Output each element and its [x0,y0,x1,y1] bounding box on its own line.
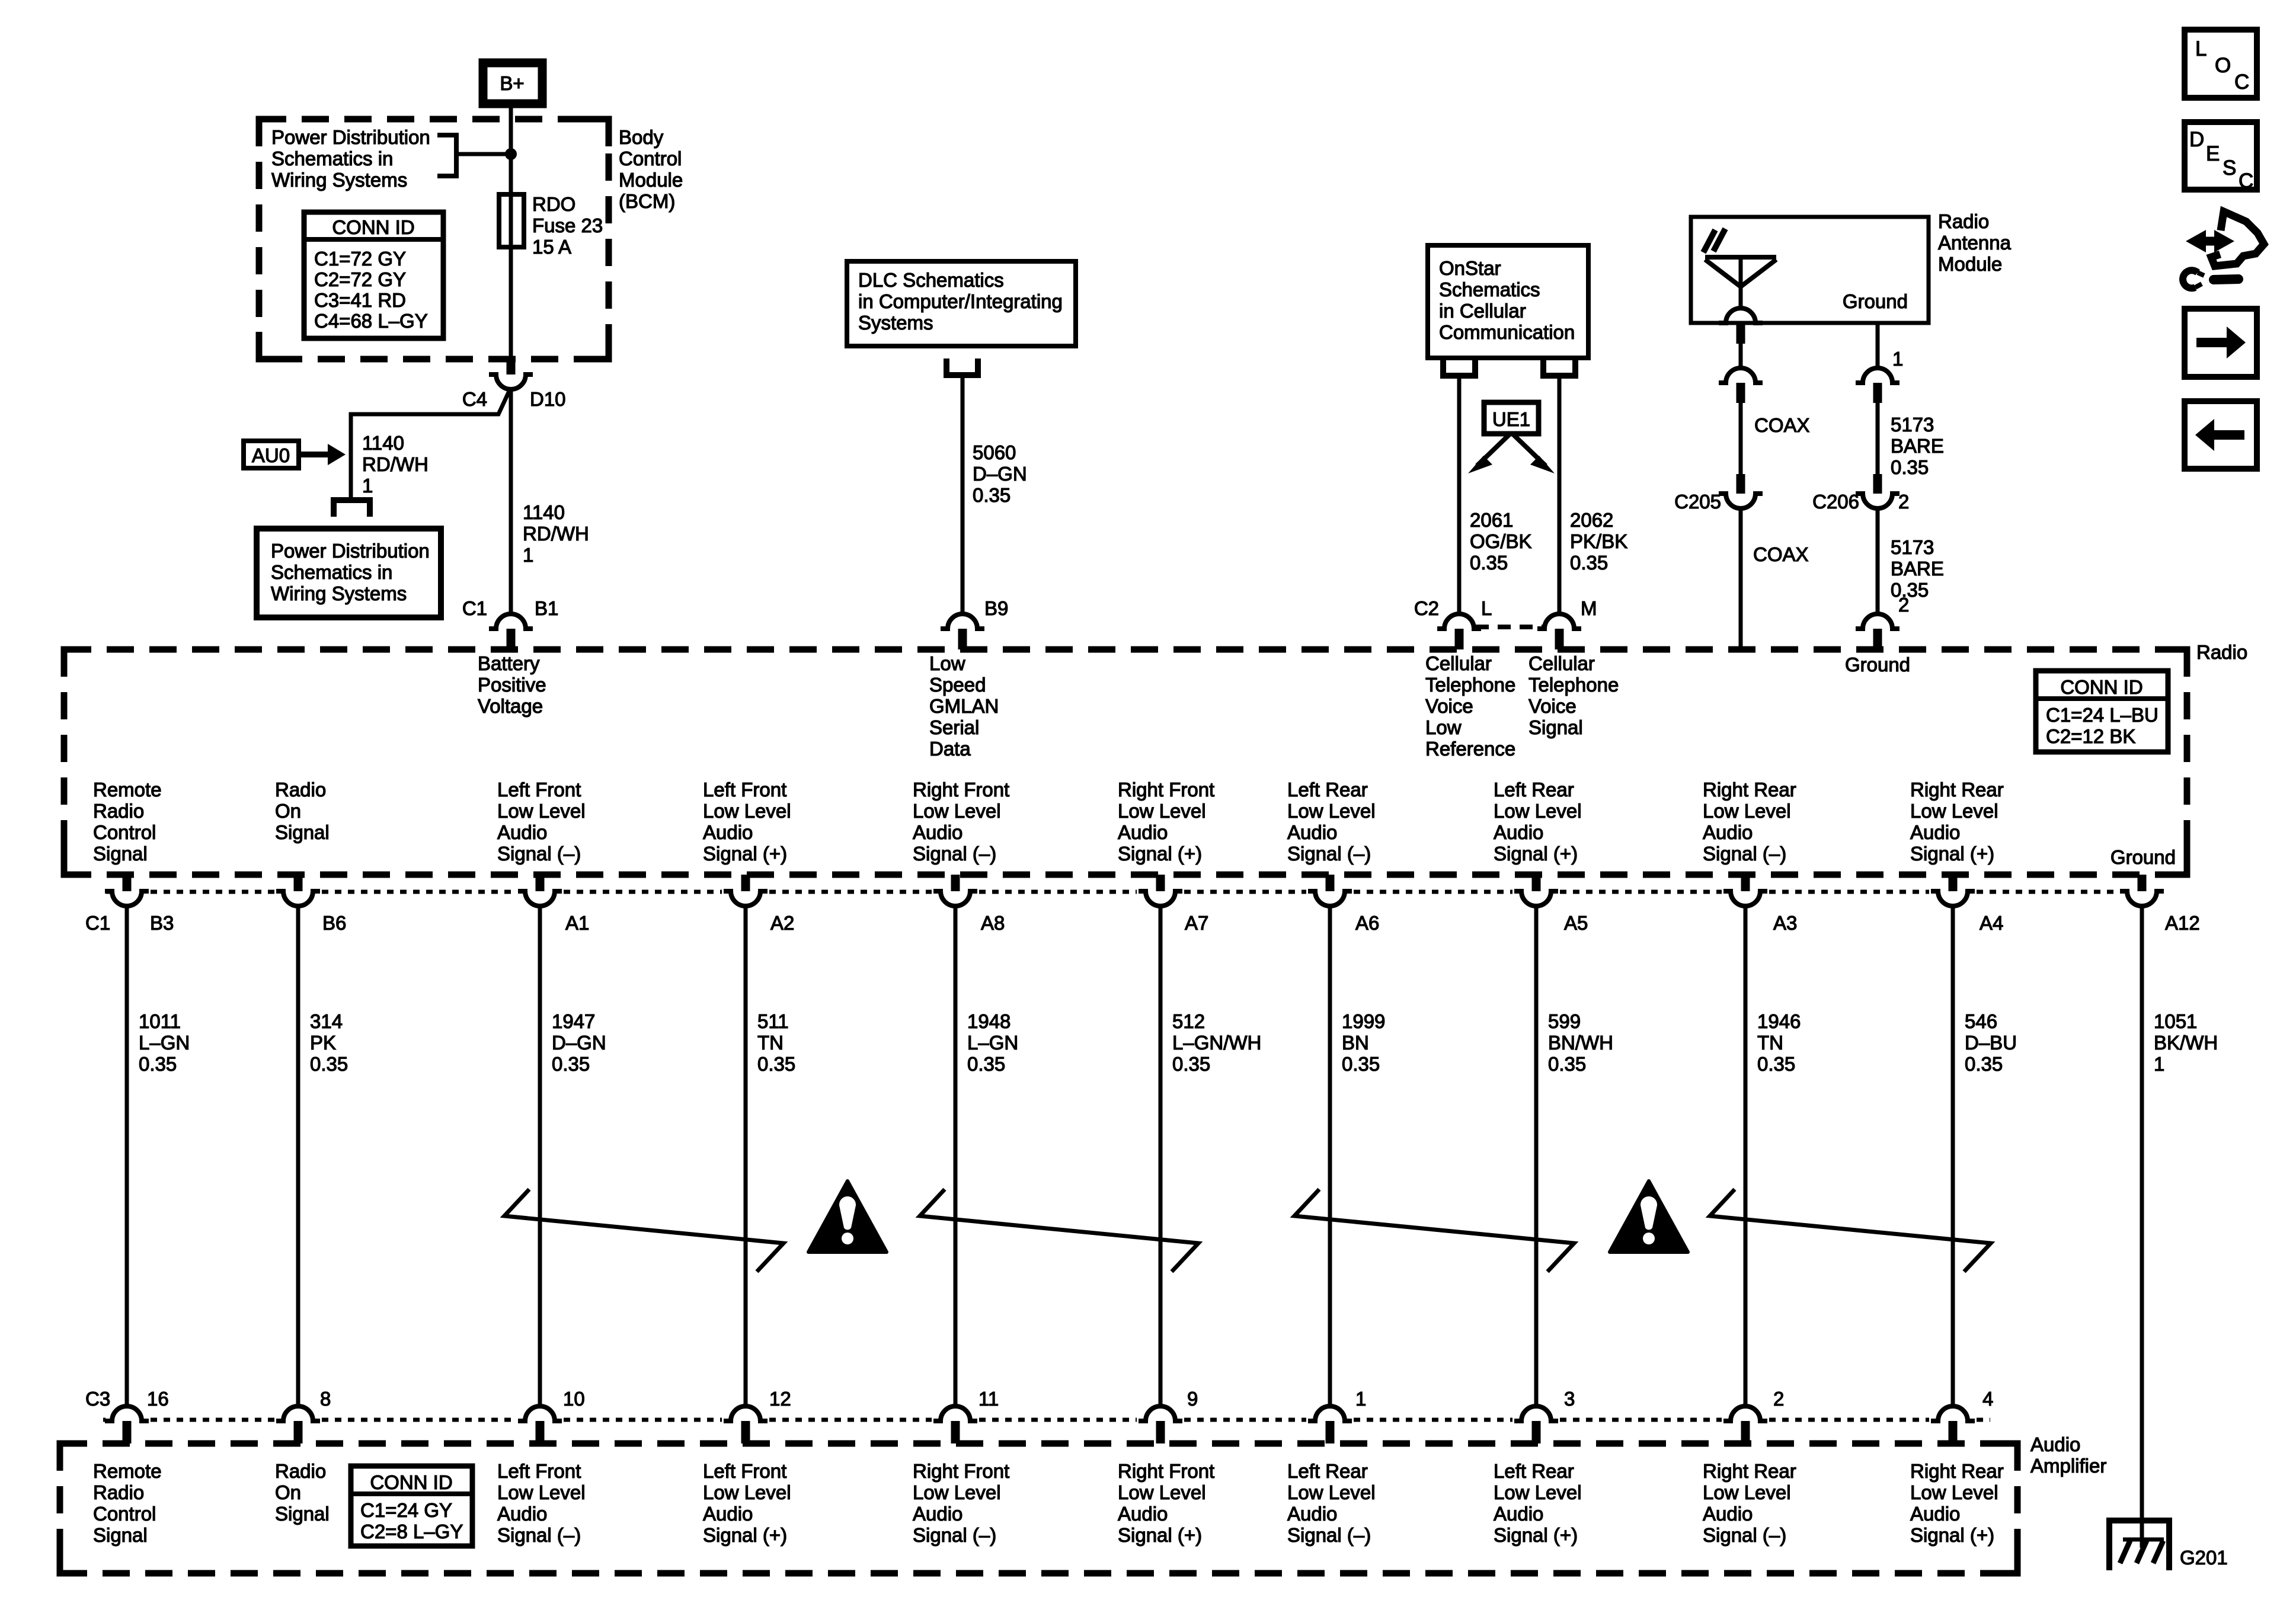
svg-text:COAX: COAX [1753,543,1809,565]
svg-text:Serial: Serial [929,716,979,738]
svg-text:Right Front: Right Front [913,779,1009,801]
svg-text:0.35: 0.35 [1548,1053,1586,1075]
svg-text:C1: C1 [462,597,487,619]
svg-text:Audio: Audio [497,821,547,843]
svg-text:BN/WH: BN/WH [1548,1032,1613,1054]
svg-text:RD/WH: RD/WH [523,523,589,545]
svg-text:Speed: Speed [929,674,986,696]
svg-text:0.35: 0.35 [757,1053,795,1075]
svg-text:Low Level: Low Level [703,1481,791,1503]
svg-text:A8: A8 [981,912,1005,934]
svg-text:Audio: Audio [497,1503,547,1525]
svg-text:Low Level: Low Level [1703,1481,1791,1503]
svg-text:1999: 1999 [1342,1010,1385,1032]
svg-text:Signal (–): Signal (–) [913,843,996,865]
svg-text:Left Front: Left Front [703,779,786,801]
svg-text:Data: Data [929,738,971,760]
svg-text:C2: C2 [1414,597,1439,619]
svg-text:Right Rear: Right Rear [1703,779,1796,801]
svg-text:Signal (–): Signal (–) [913,1524,996,1546]
svg-text:AU0: AU0 [252,444,290,466]
svg-text:Telephone: Telephone [1425,674,1515,696]
svg-text:Audio: Audio [1287,1503,1337,1525]
svg-text:Reference: Reference [1425,738,1515,760]
svg-text:B6: B6 [322,912,346,934]
svg-text:Audio: Audio [1910,821,1960,843]
svg-text:1946: 1946 [1757,1010,1801,1032]
svg-text:Signal (–): Signal (–) [1287,1524,1371,1546]
svg-text:Audio: Audio [913,821,962,843]
svg-text:Audio: Audio [2030,1433,2080,1455]
svg-text:0.35: 0.35 [139,1053,177,1075]
svg-text:0.35: 0.35 [1172,1053,1210,1075]
svg-text:5173: 5173 [1891,536,1934,558]
svg-text:C4: C4 [462,388,487,410]
svg-text:Telephone: Telephone [1528,674,1619,696]
svg-text:8: 8 [320,1388,331,1410]
svg-text:A12: A12 [2165,912,2200,934]
svg-text:Audio: Audio [1494,821,1543,843]
svg-text:16: 16 [147,1388,169,1410]
svg-text:Control: Control [93,821,156,843]
svg-text:Radio: Radio [93,800,144,822]
svg-text:2061: 2061 [1470,509,1513,531]
svg-text:BARE: BARE [1891,435,1944,457]
svg-text:Voice: Voice [1528,695,1576,717]
svg-text:11: 11 [978,1388,999,1410]
svg-text:1: 1 [362,475,373,497]
svg-text:Remote: Remote [93,779,162,801]
svg-text:0.35: 0.35 [1570,552,1608,574]
svg-text:Signal (+): Signal (+) [703,843,787,865]
svg-text:Audio: Audio [1703,821,1753,843]
svg-text:Audio: Audio [913,1503,962,1525]
svg-text:On: On [275,1481,301,1503]
svg-text:Low Level: Low Level [1287,800,1376,822]
svg-text:599: 599 [1548,1010,1581,1032]
svg-text:L: L [1481,597,1492,619]
svg-text:1: 1 [2154,1053,2164,1075]
svg-text:Wiring Systems: Wiring Systems [271,582,407,604]
svg-text:A3: A3 [1773,912,1797,934]
svg-text:512: 512 [1172,1010,1205,1032]
svg-text:Right Front: Right Front [913,1460,1009,1482]
svg-text:0.35: 0.35 [1342,1053,1380,1075]
svg-text:1051: 1051 [2154,1010,2197,1032]
svg-text:Cellular: Cellular [1425,652,1492,674]
svg-text:B1: B1 [535,597,558,619]
svg-text:Battery: Battery [478,652,540,674]
svg-text:D10: D10 [530,388,566,410]
svg-text:CONN ID: CONN ID [332,216,414,238]
svg-text:C: C [2234,71,2249,94]
svg-text:A5: A5 [1564,912,1588,934]
svg-text:Module: Module [619,169,683,191]
svg-text:Radio: Radio [275,1460,326,1482]
svg-text:A6: A6 [1355,912,1379,934]
svg-text:Body: Body [619,126,664,148]
svg-text:C3: C3 [85,1388,110,1410]
svg-text:PK/BK: PK/BK [1570,530,1627,552]
svg-text:1140: 1140 [362,432,404,454]
svg-text:Low Level: Low Level [1910,800,1998,822]
svg-text:Low: Low [929,652,965,674]
svg-text:0.35: 0.35 [973,484,1011,506]
svg-text:Left Rear: Left Rear [1287,779,1368,801]
svg-text:Left Front: Left Front [497,779,581,801]
svg-text:D: D [2189,128,2204,151]
svg-text:Signal: Signal [275,821,330,843]
svg-text:CONN ID: CONN ID [370,1471,452,1493]
svg-text:Audio: Audio [703,1503,753,1525]
svg-text:Audio: Audio [1910,1503,1960,1525]
svg-text:Positive: Positive [478,674,546,696]
svg-text:Audio: Audio [1703,1503,1753,1525]
svg-text:PK: PK [310,1032,336,1054]
svg-text:Signal (+): Signal (+) [1910,843,1994,865]
svg-text:2: 2 [1898,491,1909,513]
svg-text:Left Rear: Left Rear [1494,779,1574,801]
svg-text:Audio: Audio [1287,821,1337,843]
svg-text:0.35: 0.35 [1891,456,1929,478]
svg-text:L–GN: L–GN [967,1032,1018,1054]
svg-text:D–BU: D–BU [1965,1032,2017,1054]
svg-text:Right Rear: Right Rear [1703,1460,1796,1482]
svg-text:Signal (–): Signal (–) [497,843,581,865]
svg-text:Control: Control [619,148,682,169]
svg-text:1: 1 [1892,348,1903,370]
svg-text:D–GN: D–GN [973,463,1027,485]
svg-text:Low Level: Low Level [913,1481,1001,1503]
svg-text:Voice: Voice [1425,695,1473,717]
svg-text:S: S [2223,156,2236,180]
svg-text:TN: TN [1757,1032,1783,1054]
svg-text:1948: 1948 [967,1010,1011,1032]
svg-text:Audio: Audio [1118,1503,1168,1525]
svg-text:Schematics in: Schematics in [271,561,392,583]
svg-text:Signal (+): Signal (+) [1494,1524,1578,1546]
svg-text:UE1: UE1 [1492,408,1530,430]
svg-text:GMLAN: GMLAN [929,695,999,717]
svg-text:C206: C206 [1812,491,1859,513]
svg-text:Radio: Radio [2196,641,2247,663]
svg-text:Low: Low [1425,716,1462,738]
svg-text:1140: 1140 [523,501,565,523]
svg-text:Radio: Radio [93,1481,144,1503]
svg-text:9: 9 [1187,1388,1198,1410]
svg-text:Left Front: Left Front [497,1460,581,1482]
svg-text:Left Rear: Left Rear [1287,1460,1368,1482]
svg-text:Ground: Ground [2110,846,2176,868]
svg-text:0.35: 0.35 [1470,552,1508,574]
svg-text:C1=24 L–BU: C1=24 L–BU [2046,704,2159,726]
svg-text:C2=8 L–GY: C2=8 L–GY [360,1521,463,1542]
svg-text:Schematics: Schematics [1439,279,1540,300]
svg-text:Low Level: Low Level [497,1481,586,1503]
svg-text:Signal: Signal [275,1503,330,1525]
svg-text:Audio: Audio [703,821,753,843]
svg-text:Low Level: Low Level [1118,1481,1206,1503]
svg-text:Schematics in: Schematics in [271,148,393,169]
svg-text:Systems: Systems [858,312,933,334]
svg-text:Left Front: Left Front [703,1460,786,1482]
svg-text:O: O [2215,54,2231,77]
svg-text:Signal: Signal [93,843,148,865]
svg-text:2: 2 [1773,1388,1784,1410]
svg-text:Audio: Audio [1118,821,1168,843]
svg-text:Low Level: Low Level [497,800,586,822]
svg-text:4: 4 [1982,1388,1993,1410]
svg-text:1: 1 [1355,1388,1366,1410]
svg-text:546: 546 [1965,1010,1997,1032]
svg-text:L–GN: L–GN [139,1032,190,1054]
svg-text:Control: Control [93,1503,156,1525]
svg-text:C205: C205 [1674,491,1721,513]
svg-text:Signal: Signal [93,1524,148,1546]
svg-text:C4=68 L–GY: C4=68 L–GY [314,310,428,332]
svg-text:C3=41 RD: C3=41 RD [314,289,406,311]
svg-text:Signal: Signal [1528,716,1583,738]
svg-text:Low Level: Low Level [1703,800,1791,822]
svg-text:Signal (–): Signal (–) [1287,843,1371,865]
svg-text:Low Level: Low Level [913,800,1001,822]
svg-text:Right Front: Right Front [1118,1460,1214,1482]
svg-text:BN: BN [1342,1032,1369,1054]
svg-text:2062: 2062 [1570,509,1613,531]
svg-text:0.35: 0.35 [310,1053,348,1075]
svg-text:Signal (+): Signal (+) [703,1524,787,1546]
svg-text:C2=12 BK: C2=12 BK [2046,725,2135,747]
svg-text:RDO: RDO [532,193,575,215]
svg-text:DLC Schematics: DLC Schematics [858,269,1004,291]
svg-text:2: 2 [1898,594,1909,616]
svg-text:A2: A2 [770,912,794,934]
svg-text:Amplifier: Amplifier [2030,1455,2106,1477]
svg-text:Wiring Systems: Wiring Systems [271,169,407,191]
svg-text:Ground: Ground [1845,654,1910,676]
svg-text:C1=24 GY: C1=24 GY [360,1499,452,1521]
svg-text:A7: A7 [1185,912,1208,934]
svg-text:511: 511 [757,1010,789,1032]
svg-text:TN: TN [757,1032,784,1054]
svg-text:Left Rear: Left Rear [1494,1460,1574,1482]
svg-text:Low Level: Low Level [1494,1481,1582,1503]
svg-text:Signal (+): Signal (+) [1118,843,1202,865]
svg-text:5173: 5173 [1891,414,1934,436]
svg-text:15 A: 15 A [532,236,571,258]
svg-text:Audio: Audio [1494,1503,1543,1525]
svg-text:OnStar: OnStar [1439,257,1501,279]
svg-text:5060: 5060 [973,441,1016,463]
svg-text:Ground: Ground [1843,290,1908,312]
svg-text:Low Level: Low Level [1287,1481,1376,1503]
svg-text:C1=72 GY: C1=72 GY [314,248,406,270]
svg-text:RD/WH: RD/WH [362,453,428,475]
svg-text:C1: C1 [85,912,110,934]
svg-text:1011: 1011 [139,1010,181,1032]
svg-text:Radio: Radio [275,779,326,801]
svg-text:Signal (–): Signal (–) [1703,843,1786,865]
svg-text:Signal (–): Signal (–) [1703,1524,1786,1546]
svg-text:OG/BK: OG/BK [1470,530,1532,552]
svg-text:0.35: 0.35 [1965,1053,2003,1075]
svg-text:CONN ID: CONN ID [2060,676,2142,698]
svg-text:1: 1 [523,544,533,566]
svg-text:B3: B3 [150,912,174,934]
svg-text:Signal (+): Signal (+) [1494,843,1578,865]
svg-text:Cellular: Cellular [1528,652,1595,674]
svg-text:Power Distribution: Power Distribution [271,540,430,562]
svg-text:Fuse 23: Fuse 23 [532,215,603,236]
svg-text:Signal (+): Signal (+) [1910,1524,1994,1546]
svg-text:12: 12 [769,1388,791,1410]
svg-text:B+: B+ [500,72,524,94]
svg-text:0.35: 0.35 [1891,579,1929,601]
svg-text:E: E [2206,142,2220,165]
svg-text:Low Level: Low Level [703,800,791,822]
svg-text:0.35: 0.35 [552,1053,590,1075]
svg-text:0.35: 0.35 [1757,1053,1795,1075]
svg-text:Right Rear: Right Rear [1910,1460,2004,1482]
svg-text:L: L [2195,37,2207,60]
svg-text:Radio: Radio [1938,210,1989,232]
svg-text:Signal (+): Signal (+) [1118,1524,1202,1546]
svg-text:B9: B9 [984,597,1008,619]
svg-text:A1: A1 [565,912,589,934]
svg-text:Voltage: Voltage [478,695,543,717]
svg-text:L–GN/WH: L–GN/WH [1172,1032,1261,1054]
svg-text:Low Level: Low Level [1118,800,1206,822]
svg-text:Remote: Remote [93,1460,162,1482]
svg-text:10: 10 [563,1388,585,1410]
svg-text:Module: Module [1938,253,2002,275]
svg-text:A4: A4 [1980,912,2003,934]
svg-text:BARE: BARE [1891,558,1944,580]
svg-text:1947: 1947 [552,1010,595,1032]
svg-text:BK/WH: BK/WH [2154,1032,2218,1054]
svg-text:D–GN: D–GN [552,1032,606,1054]
svg-text:Right Front: Right Front [1118,779,1214,801]
svg-text:in Cellular: in Cellular [1439,300,1526,322]
svg-text:COAX: COAX [1754,414,1810,436]
svg-text:Signal (–): Signal (–) [497,1524,581,1546]
svg-text:Low Level: Low Level [1910,1481,1998,1503]
svg-text:(BCM): (BCM) [619,190,675,212]
svg-text:Communication: Communication [1439,321,1575,343]
svg-text:M: M [1581,597,1597,619]
svg-text:C: C [2239,169,2253,193]
svg-text:Antenna: Antenna [1938,232,2012,254]
svg-text:Right Rear: Right Rear [1910,779,2004,801]
svg-text:On: On [275,800,301,822]
svg-text:314: 314 [310,1010,343,1032]
svg-text:0.35: 0.35 [967,1053,1005,1075]
svg-text:C2=72 GY: C2=72 GY [314,268,406,290]
svg-text:Low Level: Low Level [1494,800,1582,822]
svg-text:in Computer/Integrating: in Computer/Integrating [858,290,1063,312]
svg-text:G201: G201 [2180,1547,2228,1569]
svg-text:Power Distribution: Power Distribution [271,126,430,148]
svg-text:3: 3 [1564,1388,1575,1410]
